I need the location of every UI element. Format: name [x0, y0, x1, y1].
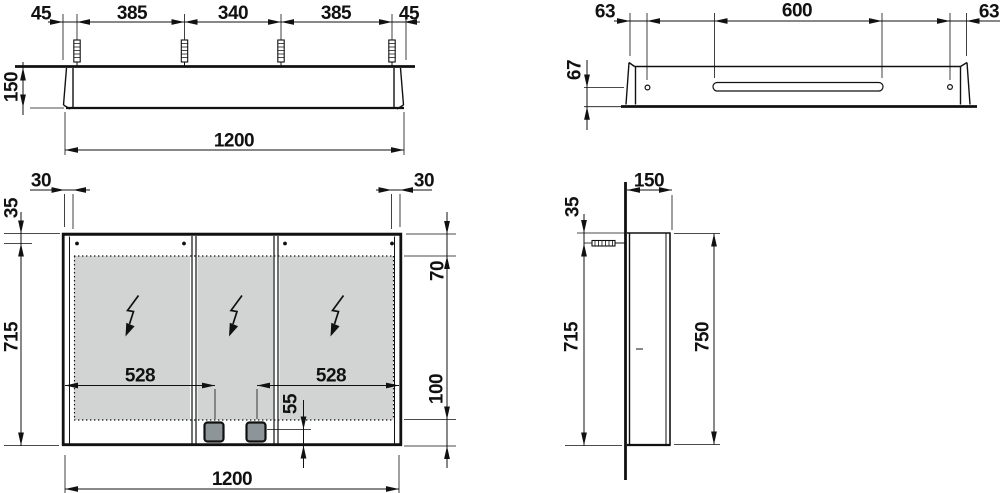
- front-view: 30 30 35 715 70 100: [2, 171, 457, 493]
- mirror-pane-left: [74, 256, 190, 420]
- dim-label-385-left: 385: [117, 3, 148, 24]
- mounting-rail-view: 63 600 63 67: [565, 1, 1000, 131]
- socket-left: [205, 423, 224, 442]
- top-view: 45 385 340 385 45 150 1200: [2, 3, 421, 155]
- rail-body: [621, 63, 977, 107]
- screw-hole-left: [645, 85, 650, 90]
- dim-label-35-front: 35: [2, 197, 23, 218]
- socket-right: [247, 423, 266, 442]
- mounting-slot: [713, 83, 883, 92]
- drawing-canvas: 45 385 340 385 45 150 1200: [0, 0, 1000, 493]
- fixing-holes: [75, 242, 394, 246]
- dim-label-35-side: 35: [563, 196, 584, 217]
- dim-label-30-right: 30: [414, 171, 434, 192]
- dim-label-600: 600: [782, 1, 812, 22]
- dim-front-inset-right: 30: [376, 171, 434, 230]
- cabinet-body-top: [64, 68, 405, 109]
- dim-label-715-side: 715: [562, 321, 583, 352]
- dim-label-385-right: 385: [321, 3, 352, 24]
- dim-label-30-left: 30: [31, 171, 51, 192]
- dim-top-chain: 45 385 340 385 45: [31, 3, 420, 60]
- dim-front-width: 1200: [65, 455, 399, 493]
- dim-label-67: 67: [565, 60, 586, 80]
- dim-label-100: 100: [427, 374, 448, 404]
- dim-label-70: 70: [428, 261, 449, 281]
- sockets: [205, 423, 266, 442]
- dim-front-left-stack: 35 715: [2, 197, 61, 446]
- dim-label-528-left: 528: [125, 366, 155, 387]
- mirror-pane-center: [198, 256, 274, 420]
- dim-rail-chain: 63 600 63: [595, 1, 1000, 81]
- screw-hole-right: [948, 85, 953, 90]
- dim-label-45-left: 45: [31, 4, 52, 25]
- dim-label-1200-top: 1200: [214, 131, 254, 152]
- wall-anchor-icon-side: [584, 241, 626, 247]
- dim-label-715-front: 715: [2, 321, 23, 352]
- dim-top-depth: 150: [2, 62, 65, 115]
- cabinet-body-side: [627, 233, 671, 446]
- dim-label-150-top: 150: [2, 72, 23, 102]
- technical-drawing-sheet: 45 385 340 385 45 150 1200: [0, 0, 1000, 493]
- dim-label-340: 340: [218, 3, 248, 24]
- dim-top-width: 1200: [65, 112, 404, 155]
- dim-label-45-right: 45: [399, 4, 420, 25]
- dim-front-right-stack: 70 100: [404, 212, 456, 468]
- dim-rail-height: 67: [565, 60, 625, 130]
- dim-side-left-stack: 35 715: [562, 196, 627, 445]
- dim-front-inset-left: 30: [30, 171, 90, 230]
- dim-label-150-side: 150: [634, 171, 664, 192]
- mirror-panes: [74, 256, 394, 420]
- dim-label-1200-front: 1200: [212, 469, 252, 490]
- dim-side-depth: 150: [627, 171, 672, 231]
- dim-label-750: 750: [693, 322, 714, 352]
- dim-label-528-right: 528: [316, 366, 346, 387]
- dim-side-height: 750: [674, 234, 720, 445]
- side-view: 150 35 715 750: [562, 171, 721, 481]
- dim-label-55: 55: [281, 393, 302, 414]
- dim-label-63-left: 63: [595, 2, 615, 23]
- dim-label-63-right: 63: [979, 2, 999, 23]
